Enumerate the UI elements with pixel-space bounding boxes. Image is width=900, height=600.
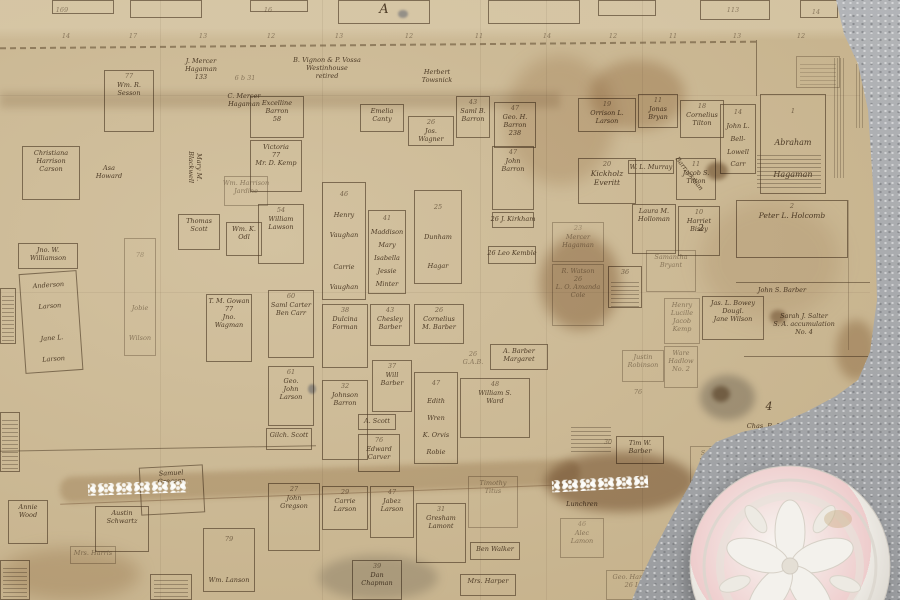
- plot-name-text: 26: [469, 350, 477, 358]
- plot-name-text: Dan: [370, 571, 383, 579]
- plot-name-text: Abraham: [775, 138, 812, 148]
- plot-name-text: Chas. R. Barber: [747, 422, 799, 430]
- plot-name-text: Larson: [334, 505, 357, 513]
- plot-vaughan: 46HenryVaughanCarrieVaughan: [322, 182, 366, 300]
- plot-number: 36: [621, 269, 629, 277]
- plot-number: 10: [695, 209, 703, 217]
- plot-dulcina-forman: 38DulcinaForman: [322, 304, 368, 368]
- plot-name-text: A: [379, 2, 388, 18]
- plot-name-text: 77: [272, 151, 280, 159]
- plot-name-text: Victoria: [263, 143, 289, 151]
- plot-name-text: 16: [264, 6, 272, 14]
- plot-name-text: Christiana: [34, 149, 68, 157]
- plot-name-text: Will: [386, 371, 399, 379]
- plot-anderson-larson: AndersonLarsonJane L.Larson: [19, 270, 84, 374]
- illegible-writing: [611, 279, 639, 307]
- plot-john-l-bell-carr: 14John L.Bell-LowellCarr: [720, 104, 756, 174]
- plot-name-text: Jno.: [223, 313, 236, 321]
- plot-wm-lanson: 79Wm. Lanson: [203, 528, 255, 592]
- plot-name-text: Justin: [633, 353, 652, 361]
- plot-name-text: Barber: [629, 447, 652, 455]
- plot-number: 54: [277, 207, 285, 215]
- plot-name-text: Dulcina: [332, 315, 357, 323]
- illegible-writing: [3, 565, 27, 597]
- plot-number: 79: [225, 536, 233, 544]
- plot-name-text: Jas. L. Bowey: [711, 299, 755, 307]
- plot-name-text: Mercer: [566, 233, 590, 241]
- plot-top-box-2: [130, 0, 202, 18]
- plot-number: 41: [383, 215, 391, 223]
- plot-name-text: Mrs. Harper: [468, 577, 509, 585]
- plot-mrs-harris: Mrs. Harris: [70, 546, 116, 564]
- plot-jabez-larson: 47JabezLarson: [370, 486, 414, 538]
- plot-name-text: Anderson: [32, 280, 64, 290]
- plot-name-text: Jno. W.: [37, 246, 59, 254]
- boundary-tick-number: 14: [57, 30, 75, 40]
- plot-top-box-6: [598, 0, 656, 16]
- plot-name-text: John L.: [726, 122, 749, 130]
- plot-number: 77: [125, 73, 133, 81]
- plot-name-text: 238: [509, 129, 521, 137]
- plot-name-text: Harrison: [36, 157, 65, 165]
- plot-number: 20: [603, 161, 611, 169]
- plot-number: 19: [603, 101, 611, 109]
- plot-name-text: Hagar: [428, 262, 449, 270]
- plot-name-text: Minter: [376, 280, 399, 288]
- plot-chas-barber: Chas. R. Barber: [734, 420, 812, 430]
- plot-number: 11: [654, 97, 662, 105]
- plot-cornelius-barber: 26CorneliusM. Barber: [414, 304, 464, 344]
- plot-mary-blackwell: Mary M.Blackwell: [187, 139, 205, 195]
- plot-name-text: John S. Barber: [758, 286, 806, 294]
- plot-number: 1: [791, 108, 795, 116]
- plot-cornelius-tilton: 18CorneliusTilton: [680, 100, 724, 138]
- plot-john-s-barber: John S. Barber: [744, 284, 820, 294]
- illegible-writing: [2, 293, 14, 341]
- plot-tim-barber: Tim W.Barber: [616, 436, 664, 464]
- tick-label: 11: [669, 32, 677, 40]
- boundary-tick-number: 11: [470, 30, 488, 40]
- plot-name-text: Barron: [462, 115, 485, 123]
- plot-name-text: Mary M.: [195, 153, 203, 181]
- plot-ware-hadlow: WareHadlowNo. 2: [664, 346, 698, 388]
- plot-big-4: 4: [760, 398, 778, 414]
- plot-name-text: Henry: [334, 211, 354, 219]
- plot-name-text: Jonas: [649, 105, 667, 113]
- plot-number: 37: [388, 363, 396, 371]
- plot-name-text: 76: [634, 388, 642, 396]
- plot-gresham-lamont: 31GreshamLamont: [416, 503, 466, 563]
- plot-name-text: Excelline: [262, 99, 292, 107]
- plot-name-text: Wagman: [215, 321, 243, 329]
- plot-top-num-113: 113: [720, 4, 746, 14]
- boundary-tick-number: 12: [400, 30, 418, 40]
- plot-name-text: Wm. Lanson: [209, 576, 250, 584]
- plot-name-text: Gresham: [426, 514, 456, 522]
- plot-num-6b31: 6 b 31: [228, 72, 262, 82]
- plot-will-barber: 37WillBarber: [372, 360, 412, 412]
- plot-name-text: Gilch. Scott: [270, 431, 309, 439]
- plot-name-text: Larson: [596, 117, 619, 125]
- plaster-medallion: ": [688, 464, 892, 600]
- plot-name-text: Cornelius: [423, 315, 455, 323]
- plot-edge-box-3: [150, 574, 192, 600]
- plot-name-text: Maddison: [371, 228, 403, 236]
- plot-name-text: Lamon: [571, 537, 593, 545]
- plot-chesley-barber: 43ChesleyBarber: [370, 304, 410, 346]
- tick-label: 12: [797, 32, 805, 40]
- plot-ben-walker: Ben Walker: [470, 542, 520, 560]
- plot-number: 78: [136, 252, 144, 260]
- plot-edge-box-4: [0, 560, 30, 600]
- plot-name-text: Hagaman: [562, 241, 594, 249]
- plot-number: 23: [574, 225, 582, 233]
- plot-name-text: Scott: [190, 225, 207, 233]
- boundary-tick-number: 12: [604, 30, 622, 40]
- plot-alec-lamon: 46AlecLamon: [560, 518, 604, 558]
- tick-label: 17: [129, 32, 137, 40]
- plot-a-scott: A. Scott: [358, 414, 396, 430]
- photo-scene: A113141691677Wm. R.SessonJ. MercerHagama…: [0, 0, 900, 600]
- plot-name-text: Barron: [266, 107, 289, 115]
- plot-name-text: Hadlow: [668, 357, 693, 365]
- plot-w-l-murray: W. L. Murray: [628, 160, 674, 174]
- boundary-tick-number: 17: [124, 30, 142, 40]
- plot-saml-b-barron: 43Saml B.Barron: [456, 96, 490, 138]
- plot-name-text: Everitt: [594, 178, 620, 187]
- plot-name-text: No. 2: [672, 365, 690, 373]
- plot-william-lawson: 54WilliamLawson: [258, 204, 304, 264]
- plot-name-text: Larson: [381, 505, 404, 513]
- plot-name-text: Kickholz: [591, 169, 623, 178]
- plot-emelia-canty: EmeliaCanty: [360, 104, 404, 132]
- plot-name-text: S. A. accumulation: [773, 320, 835, 328]
- plot-name-text: Mr. D. Kemp: [255, 159, 296, 167]
- plot-geo-h-barron: 47Geo. H.Barron238: [494, 102, 536, 148]
- plot-name-text: Mrs. Harris: [74, 549, 112, 557]
- plot-top-box-5: [488, 0, 580, 24]
- plot-name-text: Westinhouse: [306, 64, 348, 72]
- illegible-writing: [757, 154, 821, 188]
- plot-edward-carver: 76EdwardCarver: [358, 434, 400, 472]
- plot-name-text: Carrie: [334, 263, 355, 271]
- plot-name-text: Jardine: [234, 187, 258, 195]
- plot-name-text: 26 Leo Kemble: [487, 249, 536, 257]
- plot-name-text: Mary: [378, 241, 395, 249]
- tick-label: 11: [475, 32, 483, 40]
- plot-edith-orvis: 47EdithWrenK. OrvisRobie: [414, 372, 458, 464]
- plot-minter: 41MaddisonMaryIsabellaJessieMinter: [368, 210, 406, 294]
- plot-name-text: Margaret: [503, 355, 534, 363]
- plot-name-text: Gregson: [280, 502, 308, 510]
- plot-name-text: Lucille: [671, 309, 693, 317]
- plot-name-text: William S.: [478, 389, 511, 397]
- plot-name-text: retired: [316, 72, 339, 80]
- plot-asa-howard: AsaHoward: [86, 162, 132, 180]
- plot-jno-williamson: Jno. W.Williamson: [18, 243, 78, 269]
- plot-name-text: John: [506, 157, 521, 165]
- tick-label: 12: [405, 32, 413, 40]
- plot-name-text: Jabez: [383, 497, 401, 505]
- plot-geo-hamil: Geo. Hamil.26 L: [606, 570, 658, 600]
- plot-name-text: Chesley: [377, 315, 403, 323]
- plot-name-text: Canty: [372, 115, 391, 123]
- tick-label: 13: [335, 32, 343, 40]
- plot-number: 27: [290, 486, 298, 494]
- plot-name-text: Emelia: [371, 107, 394, 115]
- plot-orrison-larson: 19Orrison L.Larson: [578, 98, 636, 132]
- plot-name-text: Dougl.: [722, 307, 744, 315]
- plot-name-text: W. L. Murray: [630, 163, 673, 171]
- plot-name-text: Samantha: [654, 253, 687, 261]
- plot-wm-k-odl: Wm. K.Odl: [226, 222, 262, 256]
- plot-name-text: Laura M.: [639, 207, 669, 215]
- plot-name-text: 26: [574, 275, 582, 283]
- plot-name-text: Larson: [42, 354, 65, 364]
- plot-top-num-16: 16: [258, 4, 278, 14]
- plot-name-text: 14: [812, 8, 820, 16]
- plot-jobie-wilson: 78JobieWilson: [124, 238, 156, 356]
- plot-name-text: 77: [225, 305, 233, 313]
- plot-name-text: Barron: [502, 165, 525, 173]
- plot-name-text: Schwartz: [107, 517, 138, 525]
- plot-name-text: Sesson: [117, 89, 140, 97]
- plot-name-text: Lunchren: [566, 500, 598, 508]
- boundary-tick-number: 14: [538, 30, 556, 40]
- plot-dunham-hagar: 25DunhamHagar: [414, 190, 462, 284]
- plot-name-text: Kemp: [673, 325, 692, 333]
- plot-number: 47: [511, 105, 519, 113]
- plot-name-text: Austin: [111, 509, 132, 517]
- plot-name-text: A. Scott: [364, 417, 390, 425]
- plot-name-text: 6 b 31: [235, 74, 256, 82]
- plot-name-text: J. Mercer: [186, 57, 216, 65]
- plot-name-text: Wm. K.: [232, 225, 256, 233]
- plot-name-text: Carr: [730, 160, 745, 168]
- plot-number: 38: [341, 307, 349, 315]
- tick-label: 14: [543, 32, 551, 40]
- plot-top-letter-a: A: [372, 0, 396, 18]
- plot-edge-box-1: [0, 288, 16, 344]
- plot-name-text: Bryan: [648, 113, 668, 121]
- plot-christiana-carson: ChristianaHarrisonCarson: [22, 146, 80, 200]
- plot-geo-john-larson: 61Geo.JohnLarson: [268, 366, 314, 426]
- plot-number: 26: [427, 119, 435, 127]
- plot-gowan-wagman: T. M. Gowan77Jno.Wagman: [206, 294, 252, 362]
- plot-name-text: Cornelius: [686, 111, 718, 119]
- plot-number: 25: [434, 204, 442, 212]
- plot-samantha-bryant: SamanthaBryant: [646, 250, 696, 292]
- plot-top-num-169: 169: [50, 4, 74, 14]
- plot-name-text: Cole: [571, 291, 586, 299]
- plot-laura-holloman: Laura M.Holloman: [632, 204, 676, 254]
- plot-number: 47: [509, 149, 517, 157]
- plot-name-text: Wm. R.: [117, 81, 141, 89]
- plot-number: 18: [698, 103, 706, 111]
- plot-j-mercer-hagaman: J. MercerHagaman133: [170, 55, 232, 81]
- illegible-writing: [800, 61, 836, 85]
- plot-name-text: Orrison L.: [590, 109, 624, 117]
- plot-name-text: Wood: [19, 511, 37, 519]
- plot-name-text: Alec: [575, 529, 589, 537]
- plot-saml-carter: 60Saml CarterBen Carr: [268, 290, 314, 358]
- tick-label: 12: [267, 32, 275, 40]
- plot-henry-kemp: HenryLucilleJacobKemp: [664, 298, 700, 344]
- plot-name-text: Carver: [368, 453, 391, 461]
- plot-name-text: Peter L. Holcomb: [759, 211, 825, 220]
- plot-name-text: Bell-: [731, 135, 746, 143]
- plot-number: 26: [435, 307, 443, 315]
- plot-name-text: Bryant: [660, 261, 682, 269]
- plot-name-text: Vaughan: [330, 231, 359, 239]
- illegible-writing: [154, 579, 188, 597]
- plot-salter-note: Sarah J. SalterS. A. accumulationNo. 4: [744, 310, 864, 336]
- plot-name-text: Carrie: [335, 497, 356, 505]
- plot-name-text: Barron: [334, 399, 357, 407]
- plot-name-text: Forman: [332, 323, 357, 331]
- plot-mercer-hagaman-2: 23MercerHagaman: [552, 222, 604, 262]
- plot-timothy-titus: TimothyTitus: [468, 476, 518, 528]
- plot-name-text: Titus: [485, 487, 502, 495]
- tick-label: 13: [733, 32, 741, 40]
- plot-annie-wood: AnnieWood: [8, 500, 48, 544]
- plot-name-text: Jos.: [425, 127, 437, 135]
- plot-william-ward: 48William S.Ward: [460, 378, 530, 438]
- plot-name-text: 26 L: [625, 581, 640, 589]
- plot-road-num-2: 2: [694, 222, 708, 235]
- plot-number: 39: [373, 563, 381, 571]
- plot-name-text: Asa: [103, 164, 115, 172]
- plot-name-text: Saml: [701, 449, 718, 457]
- plot-name-text: T. M. Gowan: [208, 297, 249, 305]
- plot-name-text: L. O. Amanda: [556, 283, 600, 291]
- boundary-tick-number: 13: [728, 30, 746, 40]
- plot-edge-box-2: [0, 412, 20, 472]
- plot-name-text: 58: [273, 115, 281, 123]
- plot-name-text: Blackwell: [187, 151, 195, 183]
- plot-name-text: Ben Carr: [276, 309, 306, 317]
- plot-name-text: Geo.: [284, 377, 299, 385]
- plot-top-num-14: 14: [806, 6, 826, 16]
- plot-name-text: Odl: [238, 233, 250, 241]
- plot-name-text: Jane L.: [40, 333, 63, 343]
- plot-excelline-barron: ExcellineBarron58: [250, 96, 304, 138]
- boundary-tick-number: 13: [194, 30, 212, 40]
- boundary-tick-number: 12: [262, 30, 280, 40]
- plot-thomas-scott: ThomasScott: [178, 214, 220, 250]
- plot-name-text: Thomas: [186, 217, 212, 225]
- plot-name-text: William: [269, 215, 294, 223]
- plot-name-text: 4: [766, 400, 773, 414]
- plot-num-30: 30: [600, 436, 616, 446]
- plot-name-text: B. Vignon & P. Vossa: [293, 56, 361, 64]
- plot-name-text: Saml B.: [460, 107, 485, 115]
- plot-number: 32: [341, 383, 349, 391]
- plot-plot-36: 36: [608, 266, 642, 308]
- plot-name-text: Barber: [381, 379, 404, 387]
- plot-lunchren: Lunchren: [556, 498, 608, 508]
- plot-name-text: Lawson: [268, 223, 293, 231]
- plot-name-text: Hagaman: [185, 65, 217, 73]
- plot-name-text: Jessie: [377, 267, 396, 275]
- tick-label: 14: [62, 32, 70, 40]
- plot-name-text: Towsnick: [422, 76, 453, 84]
- plot-number: 60: [287, 293, 295, 301]
- plot-dan-chapman: 39DanChapman: [352, 560, 402, 600]
- plot-number: 31: [437, 506, 445, 514]
- plot-name-text: M. Barber: [422, 323, 456, 331]
- plot-name-text: Tilton: [692, 119, 711, 127]
- margin-notes: [834, 58, 844, 178]
- plot-num-76: 76: [630, 386, 646, 396]
- plot-name-text: K. Orvis: [423, 431, 450, 439]
- plot-name-text: Henry: [672, 301, 692, 309]
- plot-name-text: 113: [727, 6, 739, 14]
- plot-j-kirkham: 26 J. Kirkham: [492, 212, 534, 228]
- plot-name-text: Dunham: [424, 233, 452, 241]
- plot-name-text: 2: [698, 224, 704, 235]
- plot-name-text: Gregson: [157, 476, 185, 486]
- plot-name-text: Chapman: [361, 579, 392, 587]
- tick-label: 12: [609, 32, 617, 40]
- plot-john-barron: 47JohnBarron: [492, 146, 534, 210]
- plot-number: 47: [432, 380, 440, 388]
- plot-name-text: A. Barber: [503, 347, 535, 355]
- plot-name-text: Wilson: [129, 334, 151, 342]
- plot-number: 46: [578, 521, 586, 529]
- plot-name-text: Robie: [427, 448, 446, 456]
- plot-name-text: Wagner: [418, 135, 443, 143]
- plot-name-text: John: [284, 385, 299, 393]
- plot-wm-r-sesson: 77Wm. R.Sesson: [104, 70, 154, 132]
- plot-name-text: Holloman: [638, 215, 670, 223]
- plot-name-text: Lamont: [428, 522, 453, 530]
- plot-name-text: 30: [604, 438, 612, 446]
- plot-a-barber-margaret: A. BarberMargaret: [490, 344, 548, 370]
- plot-vossa-note: B. Vignon & P. VossaWestinhouseretired: [288, 54, 366, 80]
- plot-peter-holcomb: 2Peter L. Holcomb: [736, 200, 848, 258]
- plot-justin-robinson: JustinRobinson: [622, 350, 664, 382]
- plot-number: 76: [375, 437, 383, 445]
- plot-number: 43: [469, 99, 477, 107]
- plot-name-text: Ben Walker: [476, 545, 514, 553]
- plot-name-text: 26 J. Kirkham: [491, 215, 536, 223]
- plot-abraham-notes: [752, 150, 826, 192]
- plot-name-text: Howard: [96, 172, 122, 180]
- plot-name-text: 133: [195, 73, 207, 81]
- plot-name-text: Saml Carter: [271, 301, 311, 309]
- plot-name-text: Jobie: [132, 304, 149, 312]
- plot-name-text: Ward: [486, 397, 503, 405]
- plot-name-text: Sarah J. Salter: [780, 312, 828, 320]
- plot-jos-wagner: 26Jos.Wagner: [408, 116, 454, 146]
- plot-leo-kemble: 26 Leo Kemble: [488, 246, 536, 264]
- plot-name-text: Jacob: [673, 317, 691, 325]
- plot-number: 11: [692, 161, 700, 169]
- margin-notes: [856, 64, 865, 128]
- plot-name-text: Annie: [19, 503, 38, 511]
- plot-name-text: Lowell: [727, 148, 749, 156]
- plot-number: 14: [734, 109, 742, 117]
- plot-herbert-towsnick: HerbertTowsnick: [412, 66, 462, 84]
- plot-name-text: Larson: [38, 301, 61, 311]
- plot-name-text: Johnson: [332, 391, 358, 399]
- illegible-writing: [2, 417, 17, 469]
- plot-name-text: Isabella: [374, 254, 400, 262]
- plot-name-text: No. 4: [795, 328, 813, 336]
- plot-number: 43: [386, 307, 394, 315]
- plot-number: 46: [340, 191, 348, 199]
